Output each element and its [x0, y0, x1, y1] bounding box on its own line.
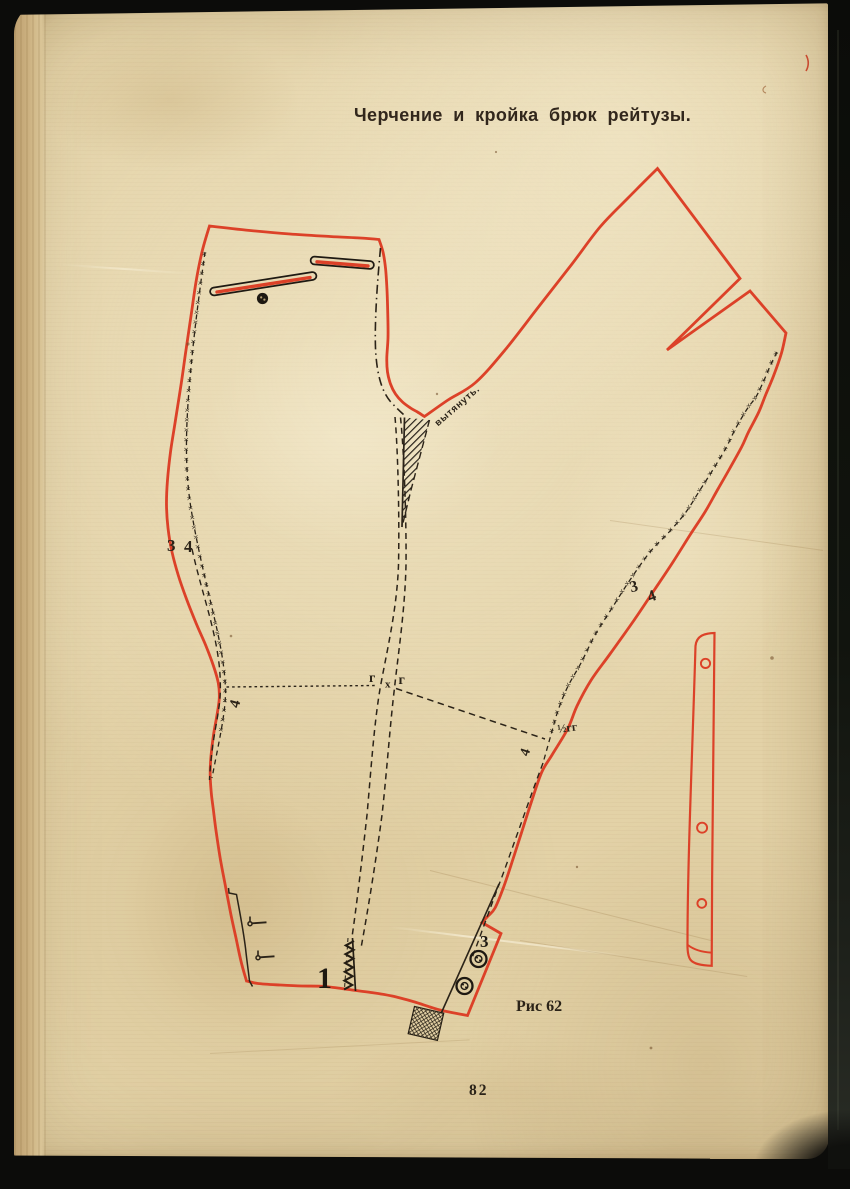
svg-text:1: 1 [317, 962, 332, 995]
svg-text:4: 4 [184, 537, 193, 556]
svg-text:3: 3 [167, 536, 176, 555]
svg-text:3: 3 [480, 932, 489, 951]
svg-text:3: 3 [628, 578, 640, 596]
svg-text:Черчение и кройка брюк рейтузы: Черчение и кройка брюк рейтузы. [354, 105, 691, 125]
svg-text:г: г [369, 671, 375, 686]
svg-text:4: 4 [227, 698, 245, 710]
svg-text:x: x [385, 679, 391, 691]
svg-text:82: 82 [469, 1082, 489, 1099]
svg-text:г: г [399, 673, 405, 688]
svg-text:xxxxxxxxxxxxxxxxxxxxxxxxxxxxxx: xxxxxxxxxxxxxxxxxxxxxxxxxxxxxxxxxxxxxxxx… [181, 251, 228, 738]
svg-text:xxxxxxxxxxxxxxxxxxxxxxxxxxxxxx: xxxxxxxxxxxxxxxxxxxxxxxxxxxxxxxxxxxxxxxx… [545, 350, 780, 740]
svg-text:4: 4 [518, 747, 534, 758]
svg-text:Рис 62: Рис 62 [516, 998, 562, 1015]
svg-text:½гг: ½гг [556, 719, 578, 736]
